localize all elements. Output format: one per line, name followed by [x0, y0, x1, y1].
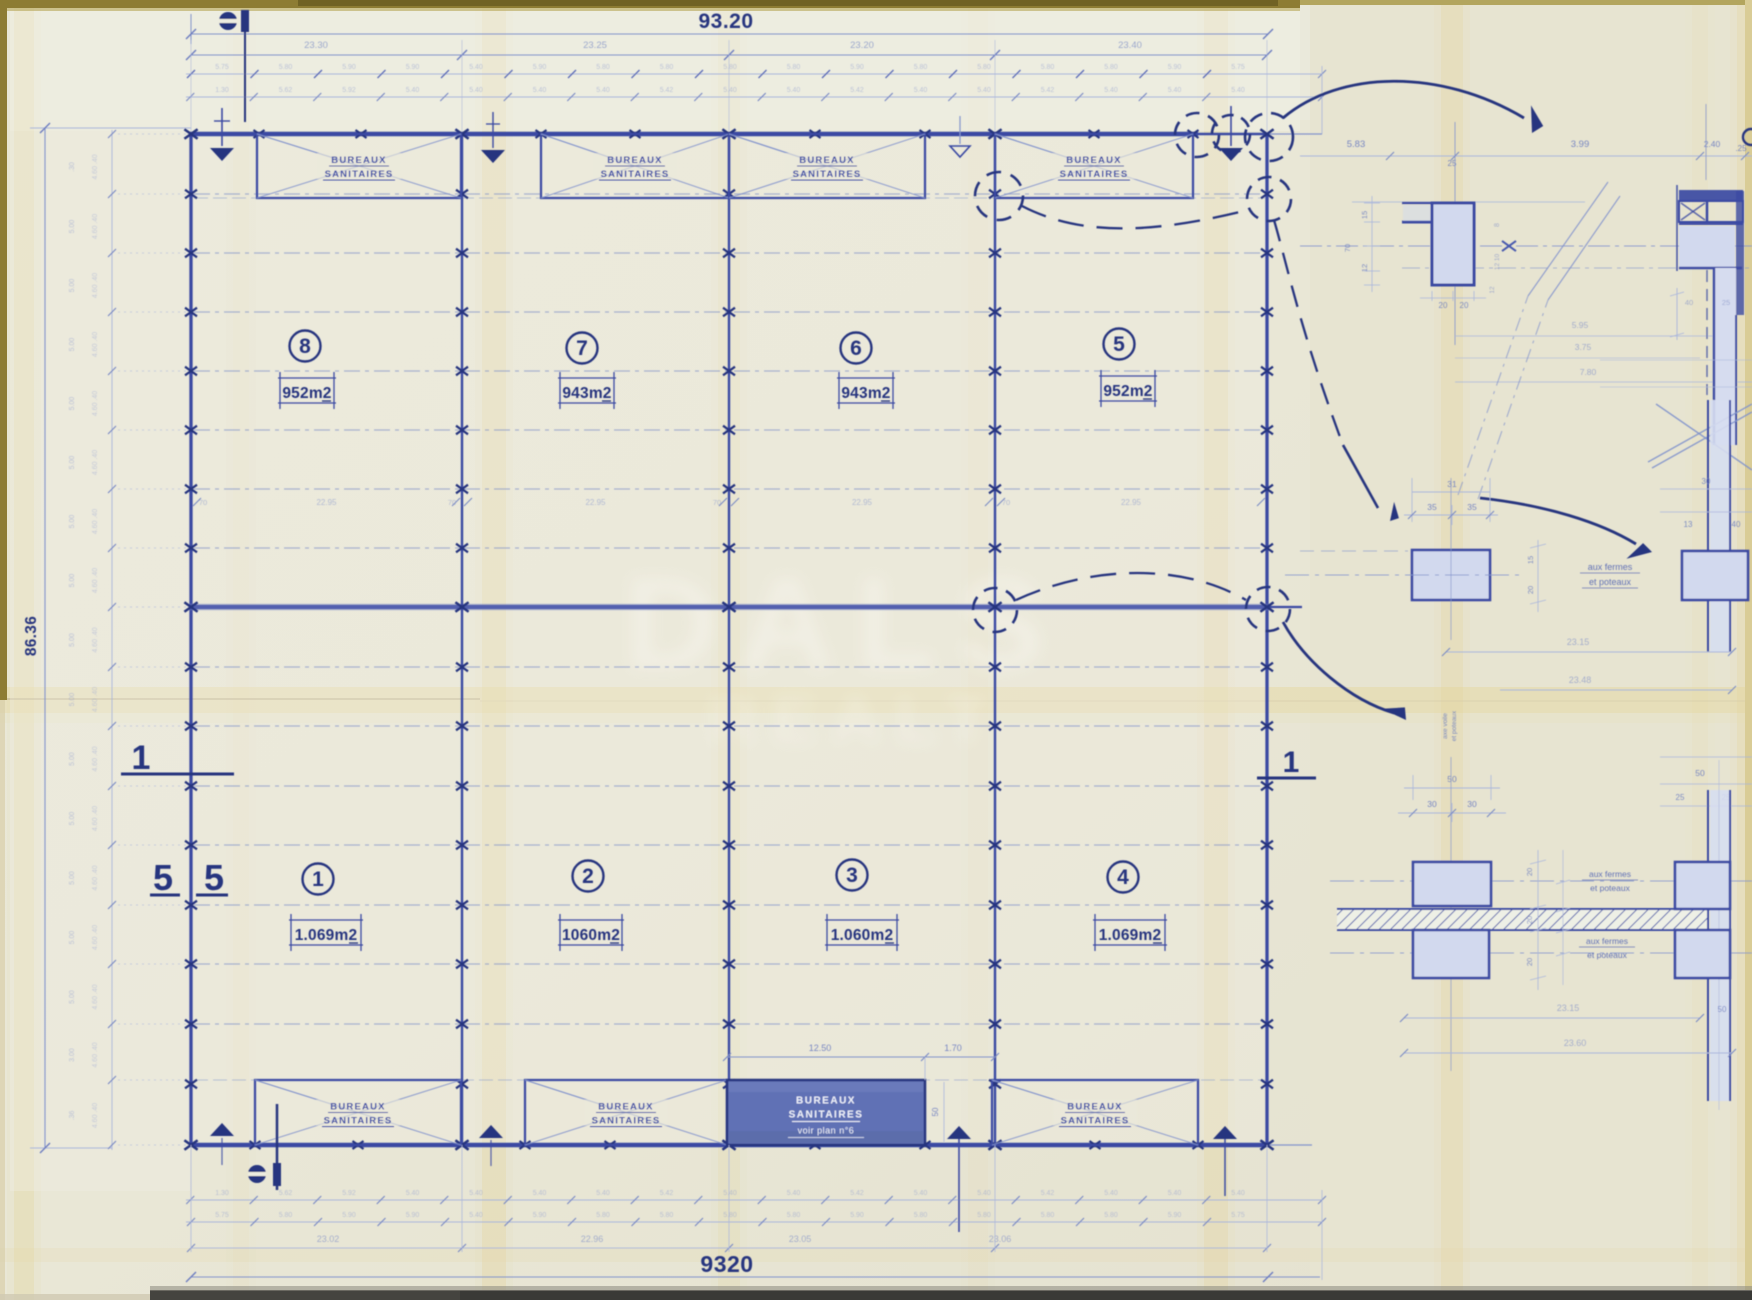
svg-text:22.95: 22.95: [585, 498, 606, 507]
svg-text:22.95: 22.95: [1121, 498, 1142, 507]
svg-text:9320: 9320: [700, 1251, 753, 1277]
svg-text:5.40: 5.40: [406, 1190, 420, 1197]
svg-text:1060m2: 1060m2: [562, 927, 620, 944]
svg-text:22.95: 22.95: [316, 498, 337, 507]
svg-text:943m2: 943m2: [562, 385, 611, 402]
svg-text:3: 3: [846, 864, 858, 887]
svg-text:5.42: 5.42: [660, 87, 674, 94]
svg-text:12 10: 12 10: [1494, 253, 1501, 270]
svg-text:12.50: 12.50: [809, 1043, 832, 1053]
svg-text:2: 2: [582, 865, 594, 888]
svg-text:BUREAUX: BUREAUX: [1066, 155, 1121, 166]
svg-text:20: 20: [1525, 958, 1534, 966]
svg-text:5.90: 5.90: [406, 64, 420, 71]
svg-text:5.40: 5.40: [914, 87, 928, 94]
svg-text:943m2: 943m2: [841, 385, 890, 402]
svg-text:5.40: 5.40: [977, 87, 991, 94]
svg-text:5.62: 5.62: [279, 1190, 293, 1197]
svg-text:8: 8: [1494, 223, 1501, 227]
svg-text:5.00: 5.00: [69, 574, 76, 588]
svg-text:SANITAIRES: SANITAIRES: [793, 169, 862, 180]
svg-text:1.30: 1.30: [215, 87, 229, 94]
svg-text:4.60 .40: 4.60 .40: [92, 627, 99, 652]
svg-text:BUREAUX: BUREAUX: [330, 1102, 385, 1113]
svg-text:5.40: 5.40: [1168, 87, 1182, 94]
svg-text:4.60 .40: 4.60 .40: [92, 1103, 99, 1128]
svg-text:SANITAIRES: SANITAIRES: [601, 169, 670, 180]
svg-text:5.90: 5.90: [406, 1212, 420, 1219]
svg-text:5: 5: [204, 857, 224, 898]
svg-text:SANITAIRES: SANITAIRES: [592, 1116, 661, 1127]
svg-text:1: 1: [132, 739, 151, 777]
svg-text:5.40: 5.40: [787, 87, 801, 94]
svg-text:4.60 .40: 4.60 .40: [92, 214, 99, 239]
svg-text:5.42: 5.42: [660, 1190, 674, 1197]
svg-text:5.90: 5.90: [1168, 1212, 1182, 1219]
svg-text:4.60 .40: 4.60 .40: [92, 391, 99, 416]
svg-text:3.00: 3.00: [69, 1048, 76, 1062]
svg-text:70: 70: [448, 498, 456, 507]
svg-text:50: 50: [1718, 1005, 1727, 1014]
svg-text:22.96: 22.96: [581, 1234, 604, 1244]
svg-text:5.80: 5.80: [1041, 1212, 1055, 1219]
svg-text:5.40: 5.40: [469, 64, 483, 71]
svg-text:SANITAIRES: SANITAIRES: [1061, 1116, 1130, 1127]
svg-text:5.42: 5.42: [1041, 1190, 1055, 1197]
svg-text:35: 35: [1427, 502, 1437, 512]
svg-text:5.90: 5.90: [533, 1212, 547, 1219]
svg-text:30: 30: [1427, 799, 1437, 809]
svg-text:5: 5: [1113, 333, 1125, 356]
svg-text:SANITAIRES: SANITAIRES: [324, 1116, 393, 1127]
svg-text:23.15: 23.15: [1567, 637, 1590, 647]
svg-text:SANITAIRES: SANITAIRES: [789, 1110, 864, 1121]
svg-text:5.80: 5.80: [660, 1212, 674, 1219]
svg-text:et poteaux: et poteaux: [1590, 883, 1630, 893]
svg-text:1.069m2: 1.069m2: [1099, 927, 1162, 944]
svg-text:5: 5: [153, 857, 173, 898]
svg-text:5.40: 5.40: [596, 1190, 610, 1197]
svg-text:5.40: 5.40: [1168, 1190, 1182, 1197]
svg-text:5.00: 5.00: [69, 456, 76, 470]
svg-text:.25: .25: [1735, 144, 1747, 153]
svg-text:4.60 .40: 4.60 .40: [92, 984, 99, 1009]
svg-text:23.05: 23.05: [789, 1234, 812, 1244]
svg-text:5.80: 5.80: [596, 64, 610, 71]
svg-text:952m2: 952m2: [1103, 383, 1152, 400]
svg-text:1: 1: [312, 868, 324, 891]
svg-text:5.00: 5.00: [69, 397, 76, 411]
svg-text:5.90: 5.90: [850, 1212, 864, 1219]
svg-text:5.83: 5.83: [1347, 139, 1366, 150]
svg-text:5.40: 5.40: [723, 87, 737, 94]
svg-text:5.40: 5.40: [469, 1212, 483, 1219]
svg-text:1.060m2: 1.060m2: [831, 927, 894, 944]
svg-text:5.80: 5.80: [977, 1212, 991, 1219]
svg-text:23.30: 23.30: [304, 40, 328, 51]
svg-text:4.60 .40: 4.60 .40: [92, 806, 99, 831]
svg-text:5.80: 5.80: [787, 64, 801, 71]
svg-text:5.00: 5.00: [69, 338, 76, 352]
svg-text:23.48: 23.48: [1569, 675, 1592, 685]
svg-text:5.40: 5.40: [723, 1190, 737, 1197]
svg-text:40: 40: [1732, 520, 1741, 529]
svg-text:4.60 .40: 4.60 .40: [92, 154, 99, 179]
svg-text:1.069m2: 1.069m2: [295, 927, 358, 944]
svg-text:BUREAUX: BUREAUX: [1067, 1102, 1122, 1113]
svg-text:5.80: 5.80: [660, 64, 674, 71]
svg-text:5.62: 5.62: [279, 87, 293, 94]
svg-text:70: 70: [713, 498, 721, 507]
svg-text:et poteaux: et poteaux: [1589, 577, 1632, 587]
svg-text:70: 70: [1002, 498, 1010, 507]
svg-text:4.60 .40: 4.60 .40: [92, 273, 99, 298]
svg-text:5.00: 5.00: [69, 279, 76, 293]
svg-text:5.80: 5.80: [279, 1212, 293, 1219]
svg-text:BUREAUX: BUREAUX: [796, 1096, 856, 1107]
svg-text:5.90: 5.90: [1168, 64, 1182, 71]
svg-text:35: 35: [1467, 502, 1477, 512]
svg-text:5.00: 5.00: [69, 220, 76, 234]
svg-text:aux fermes: aux fermes: [1588, 562, 1633, 572]
svg-text:4.60 .40: 4.60 .40: [92, 509, 99, 534]
svg-text:23.06: 23.06: [989, 1234, 1012, 1244]
svg-text:5.00: 5.00: [69, 633, 76, 647]
svg-text:aux fermes: aux fermes: [1586, 936, 1628, 946]
svg-text:.36: .36: [69, 1111, 76, 1121]
svg-text:50: 50: [931, 1107, 940, 1116]
svg-text:86.36: 86.36: [23, 616, 40, 656]
svg-text:22.95: 22.95: [852, 498, 873, 507]
svg-text:5.80: 5.80: [723, 1212, 737, 1219]
svg-text:SANITAIRES: SANITAIRES: [1060, 169, 1129, 180]
svg-text:15: 15: [1526, 556, 1535, 564]
svg-text:5.40: 5.40: [787, 1190, 801, 1197]
svg-text:5.42: 5.42: [850, 1190, 864, 1197]
svg-text:5.40: 5.40: [1104, 87, 1118, 94]
svg-text:20: 20: [1460, 301, 1469, 310]
svg-text:20: 20: [1525, 916, 1534, 924]
svg-text:23.40: 23.40: [1118, 40, 1142, 51]
svg-text:23.20: 23.20: [850, 40, 874, 51]
svg-text:BUREAUX: BUREAUX: [799, 155, 854, 166]
svg-text:5.92: 5.92: [342, 87, 356, 94]
svg-text:20: 20: [1525, 868, 1534, 876]
svg-text:5.00: 5.00: [69, 990, 76, 1004]
svg-text:1: 1: [1283, 746, 1300, 779]
svg-text:40: 40: [1685, 298, 1693, 307]
svg-text:5.92: 5.92: [342, 1190, 356, 1197]
svg-text:4.60 .40: 4.60 .40: [92, 925, 99, 950]
svg-text:5.00: 5.00: [69, 693, 76, 707]
svg-text:70: 70: [199, 498, 207, 507]
svg-text:5.40: 5.40: [469, 87, 483, 94]
svg-text:4.60 .40: 4.60 .40: [92, 687, 99, 712]
svg-text:5.80: 5.80: [1041, 64, 1055, 71]
svg-text:5.80: 5.80: [787, 1212, 801, 1219]
svg-text:23.25: 23.25: [583, 40, 607, 51]
svg-text:25: 25: [1676, 793, 1685, 802]
svg-text:5.00: 5.00: [69, 515, 76, 529]
svg-text:30: 30: [1702, 477, 1711, 486]
svg-text:1.70: 1.70: [944, 1043, 962, 1053]
svg-text:5.80: 5.80: [977, 64, 991, 71]
svg-text:23.02: 23.02: [317, 1234, 340, 1244]
svg-text:5.40: 5.40: [1231, 1190, 1245, 1197]
svg-text:et poteaux: et poteaux: [1587, 950, 1627, 960]
svg-text:23.15: 23.15: [1557, 1003, 1580, 1013]
svg-text:5.00: 5.00: [69, 812, 76, 826]
svg-text:4.60 .40: 4.60 .40: [92, 1042, 99, 1067]
svg-text:13: 13: [1684, 520, 1693, 529]
svg-text:5.90: 5.90: [533, 64, 547, 71]
svg-text:4.60 .40: 4.60 .40: [92, 746, 99, 771]
svg-text:5.80: 5.80: [596, 1212, 610, 1219]
svg-text:25: 25: [1448, 159, 1457, 168]
svg-text:4: 4: [1117, 866, 1129, 889]
svg-text:7.80: 7.80: [1580, 367, 1597, 377]
svg-text:5.40: 5.40: [533, 1190, 547, 1197]
svg-text:5.40: 5.40: [406, 87, 420, 94]
svg-text:12: 12: [1489, 286, 1496, 294]
svg-text:15: 15: [1360, 211, 1369, 219]
svg-text:5.75: 5.75: [215, 1212, 229, 1219]
svg-text:5.00: 5.00: [69, 752, 76, 766]
svg-text:.30: .30: [69, 162, 76, 172]
svg-text:4.60 .40: 4.60 .40: [92, 450, 99, 475]
svg-text:5.90: 5.90: [342, 1212, 356, 1219]
svg-text:5.40: 5.40: [469, 1190, 483, 1197]
svg-text:3.99: 3.99: [1571, 139, 1590, 150]
svg-text:5.80: 5.80: [723, 64, 737, 71]
svg-text:5.00: 5.00: [69, 931, 76, 945]
svg-text:70: 70: [1343, 244, 1352, 252]
svg-text:5.40: 5.40: [1104, 1190, 1118, 1197]
svg-text:5.00: 5.00: [69, 871, 76, 885]
svg-text:23.60: 23.60: [1564, 1038, 1587, 1048]
svg-text:5.40: 5.40: [596, 87, 610, 94]
svg-text:BUREAUX: BUREAUX: [331, 155, 386, 166]
svg-text:5.75: 5.75: [1231, 64, 1245, 71]
svg-text:voir plan n°6: voir plan n°6: [798, 1126, 855, 1136]
svg-text:93.20: 93.20: [698, 10, 753, 33]
svg-text:5.90: 5.90: [342, 64, 356, 71]
svg-text:5.75: 5.75: [215, 64, 229, 71]
svg-text:SANITAIRES: SANITAIRES: [325, 169, 394, 180]
svg-text:4.60 .40: 4.60 .40: [92, 865, 99, 890]
svg-text:5.80: 5.80: [1104, 1212, 1118, 1219]
svg-text:aux fermes: aux fermes: [1589, 869, 1631, 879]
svg-text:5.40: 5.40: [977, 1190, 991, 1197]
svg-text:25: 25: [1722, 298, 1730, 307]
svg-text:5.90: 5.90: [850, 64, 864, 71]
svg-text:1.30: 1.30: [215, 1190, 229, 1197]
svg-text:BUREAUX: BUREAUX: [598, 1102, 653, 1113]
svg-text:5.40: 5.40: [533, 87, 547, 94]
svg-text:31: 31: [1447, 479, 1457, 489]
svg-text:BUREAUX: BUREAUX: [607, 155, 662, 166]
svg-text:5.95: 5.95: [1572, 320, 1589, 330]
svg-text:7: 7: [576, 337, 588, 360]
svg-text:5.40: 5.40: [914, 1190, 928, 1197]
svg-text:5.40: 5.40: [1231, 87, 1245, 94]
svg-text:30: 30: [1467, 799, 1477, 809]
svg-text:axe voile: axe voile: [1442, 713, 1449, 739]
svg-text:12: 12: [1360, 264, 1369, 272]
svg-text:5.80: 5.80: [1104, 64, 1118, 71]
svg-text:20: 20: [1439, 301, 1448, 310]
svg-text:50: 50: [1695, 768, 1705, 778]
svg-text:5.42: 5.42: [850, 87, 864, 94]
svg-text:5.42: 5.42: [1041, 87, 1055, 94]
svg-text:5.80: 5.80: [914, 64, 928, 71]
svg-text:5.80: 5.80: [914, 1212, 928, 1219]
svg-text:8: 8: [299, 335, 311, 358]
svg-text:5.75: 5.75: [1231, 1212, 1245, 1219]
svg-text:6: 6: [850, 337, 862, 360]
svg-text:et poteaux: et poteaux: [1451, 710, 1458, 741]
svg-text:4.60 .40: 4.60 .40: [92, 332, 99, 357]
svg-text:952m2: 952m2: [282, 385, 331, 402]
svg-text:3.75: 3.75: [1575, 342, 1592, 352]
svg-text:50: 50: [1447, 774, 1457, 784]
svg-text:4.60 .40: 4.60 .40: [92, 568, 99, 593]
svg-text:5.80: 5.80: [279, 64, 293, 71]
svg-text:20: 20: [1526, 586, 1535, 594]
